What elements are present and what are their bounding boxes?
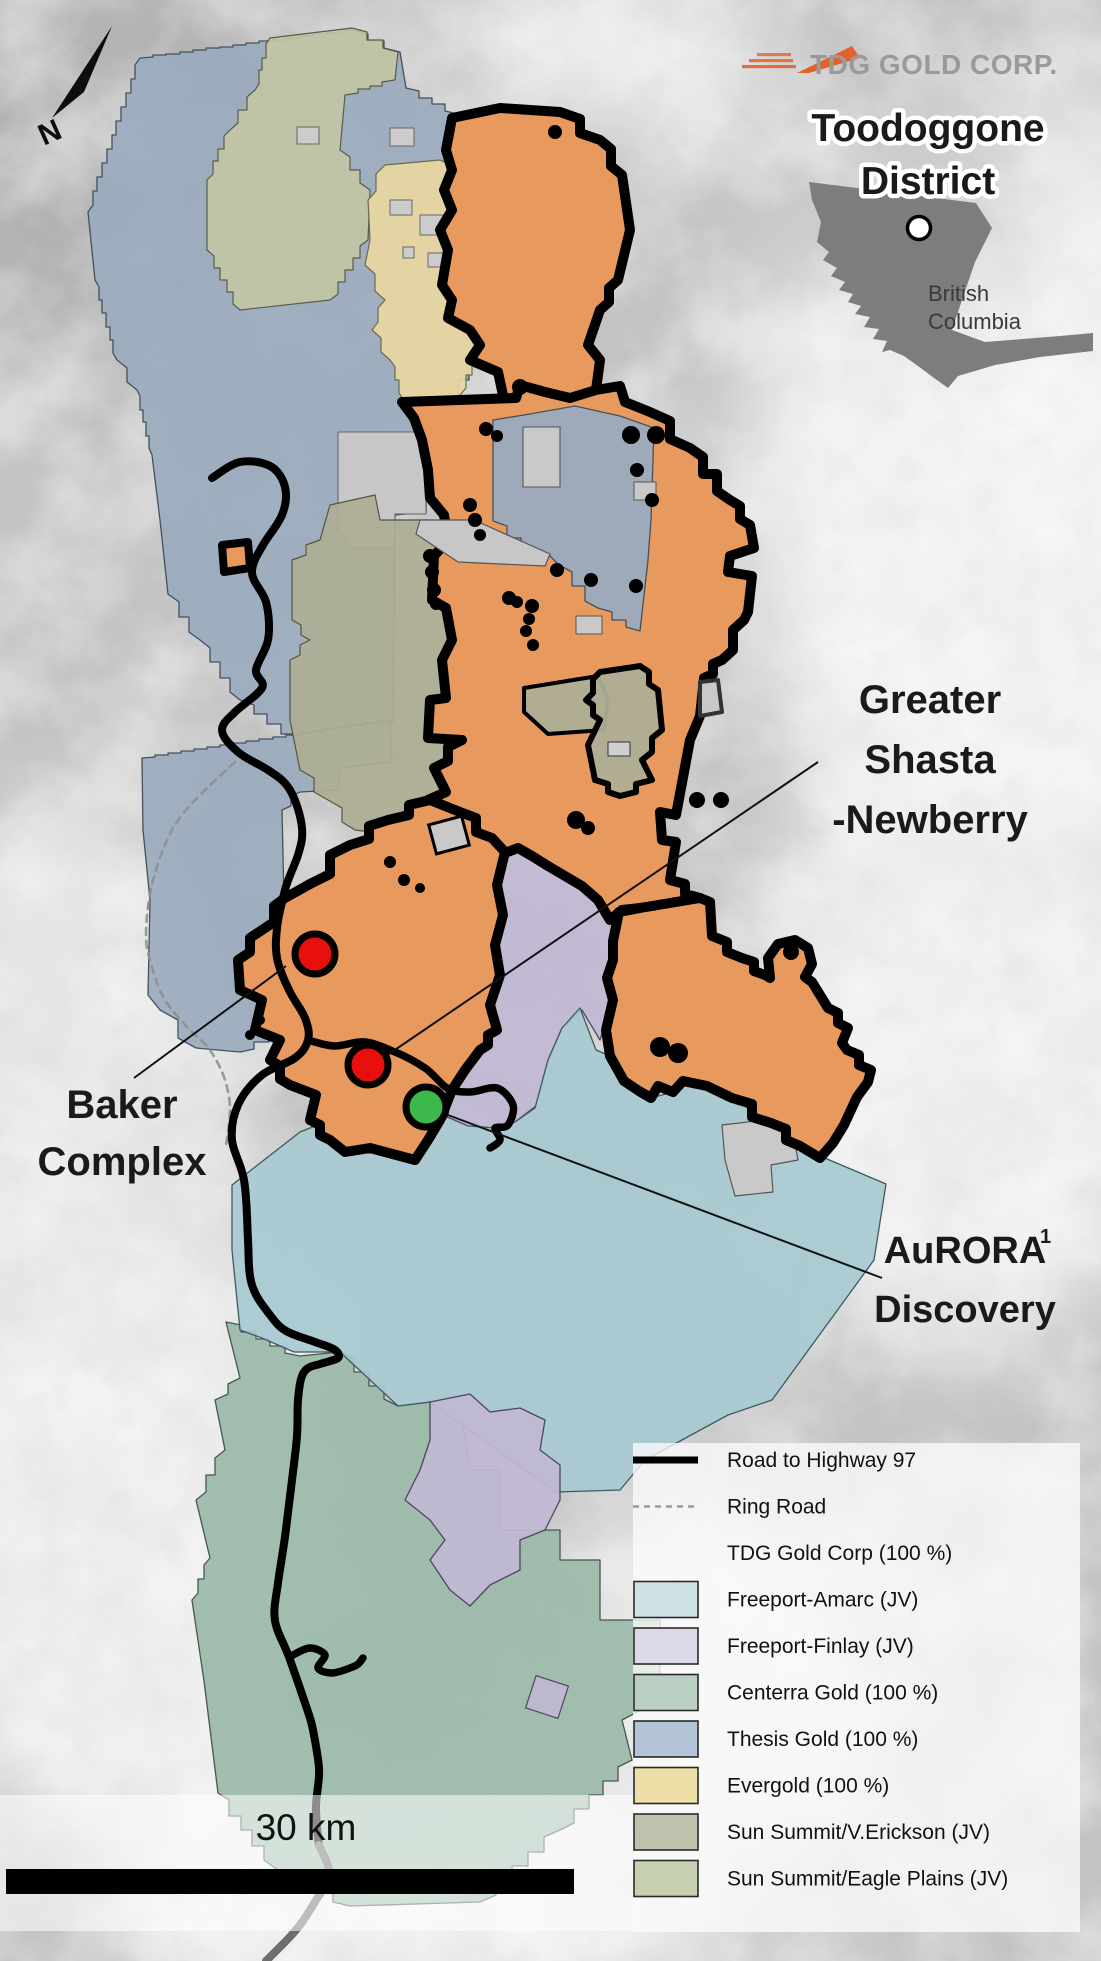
svg-text:Greater: Greater [859,678,1001,722]
svg-text:Baker: Baker [66,1083,177,1127]
svg-text:Columbia: Columbia [928,309,1022,334]
svg-text:Freeport-Finlay (JV): Freeport-Finlay (JV) [727,1635,914,1658]
svg-text:Toodoggone: Toodoggone [811,107,1044,150]
svg-text:-Newberry: -Newberry [832,798,1028,842]
svg-text:Road to Highway 97: Road to Highway 97 [727,1449,916,1472]
svg-text:Shasta: Shasta [864,738,996,782]
svg-text:30 km: 30 km [256,1807,357,1848]
svg-text:TDG Gold Corp (100 %): TDG Gold Corp (100 %) [727,1542,952,1565]
svg-text:Ring Road: Ring Road [727,1496,826,1519]
svg-text:Evergold (100 %): Evergold (100 %) [727,1775,889,1798]
svg-text:1: 1 [1040,1226,1051,1248]
svg-text:AuRORA: AuRORA [884,1230,1047,1272]
svg-text:Discovery: Discovery [874,1289,1056,1331]
svg-text:District: District [861,160,995,203]
svg-text:Freeport-Amarc (JV): Freeport-Amarc (JV) [727,1589,918,1612]
svg-text:British: British [928,281,989,306]
svg-text:Complex: Complex [38,1140,207,1184]
svg-text:Sun Summit/V.Erickson (JV): Sun Summit/V.Erickson (JV) [727,1821,990,1844]
svg-text:Thesis Gold (100 %): Thesis Gold (100 %) [727,1728,918,1751]
svg-text:Centerra Gold (100 %): Centerra Gold (100 %) [727,1682,938,1705]
svg-text:Sun Summit/Eagle Plains (JV): Sun Summit/Eagle Plains (JV) [727,1868,1008,1891]
svg-text:TDG GOLD CORP.: TDG GOLD CORP. [810,49,1058,80]
